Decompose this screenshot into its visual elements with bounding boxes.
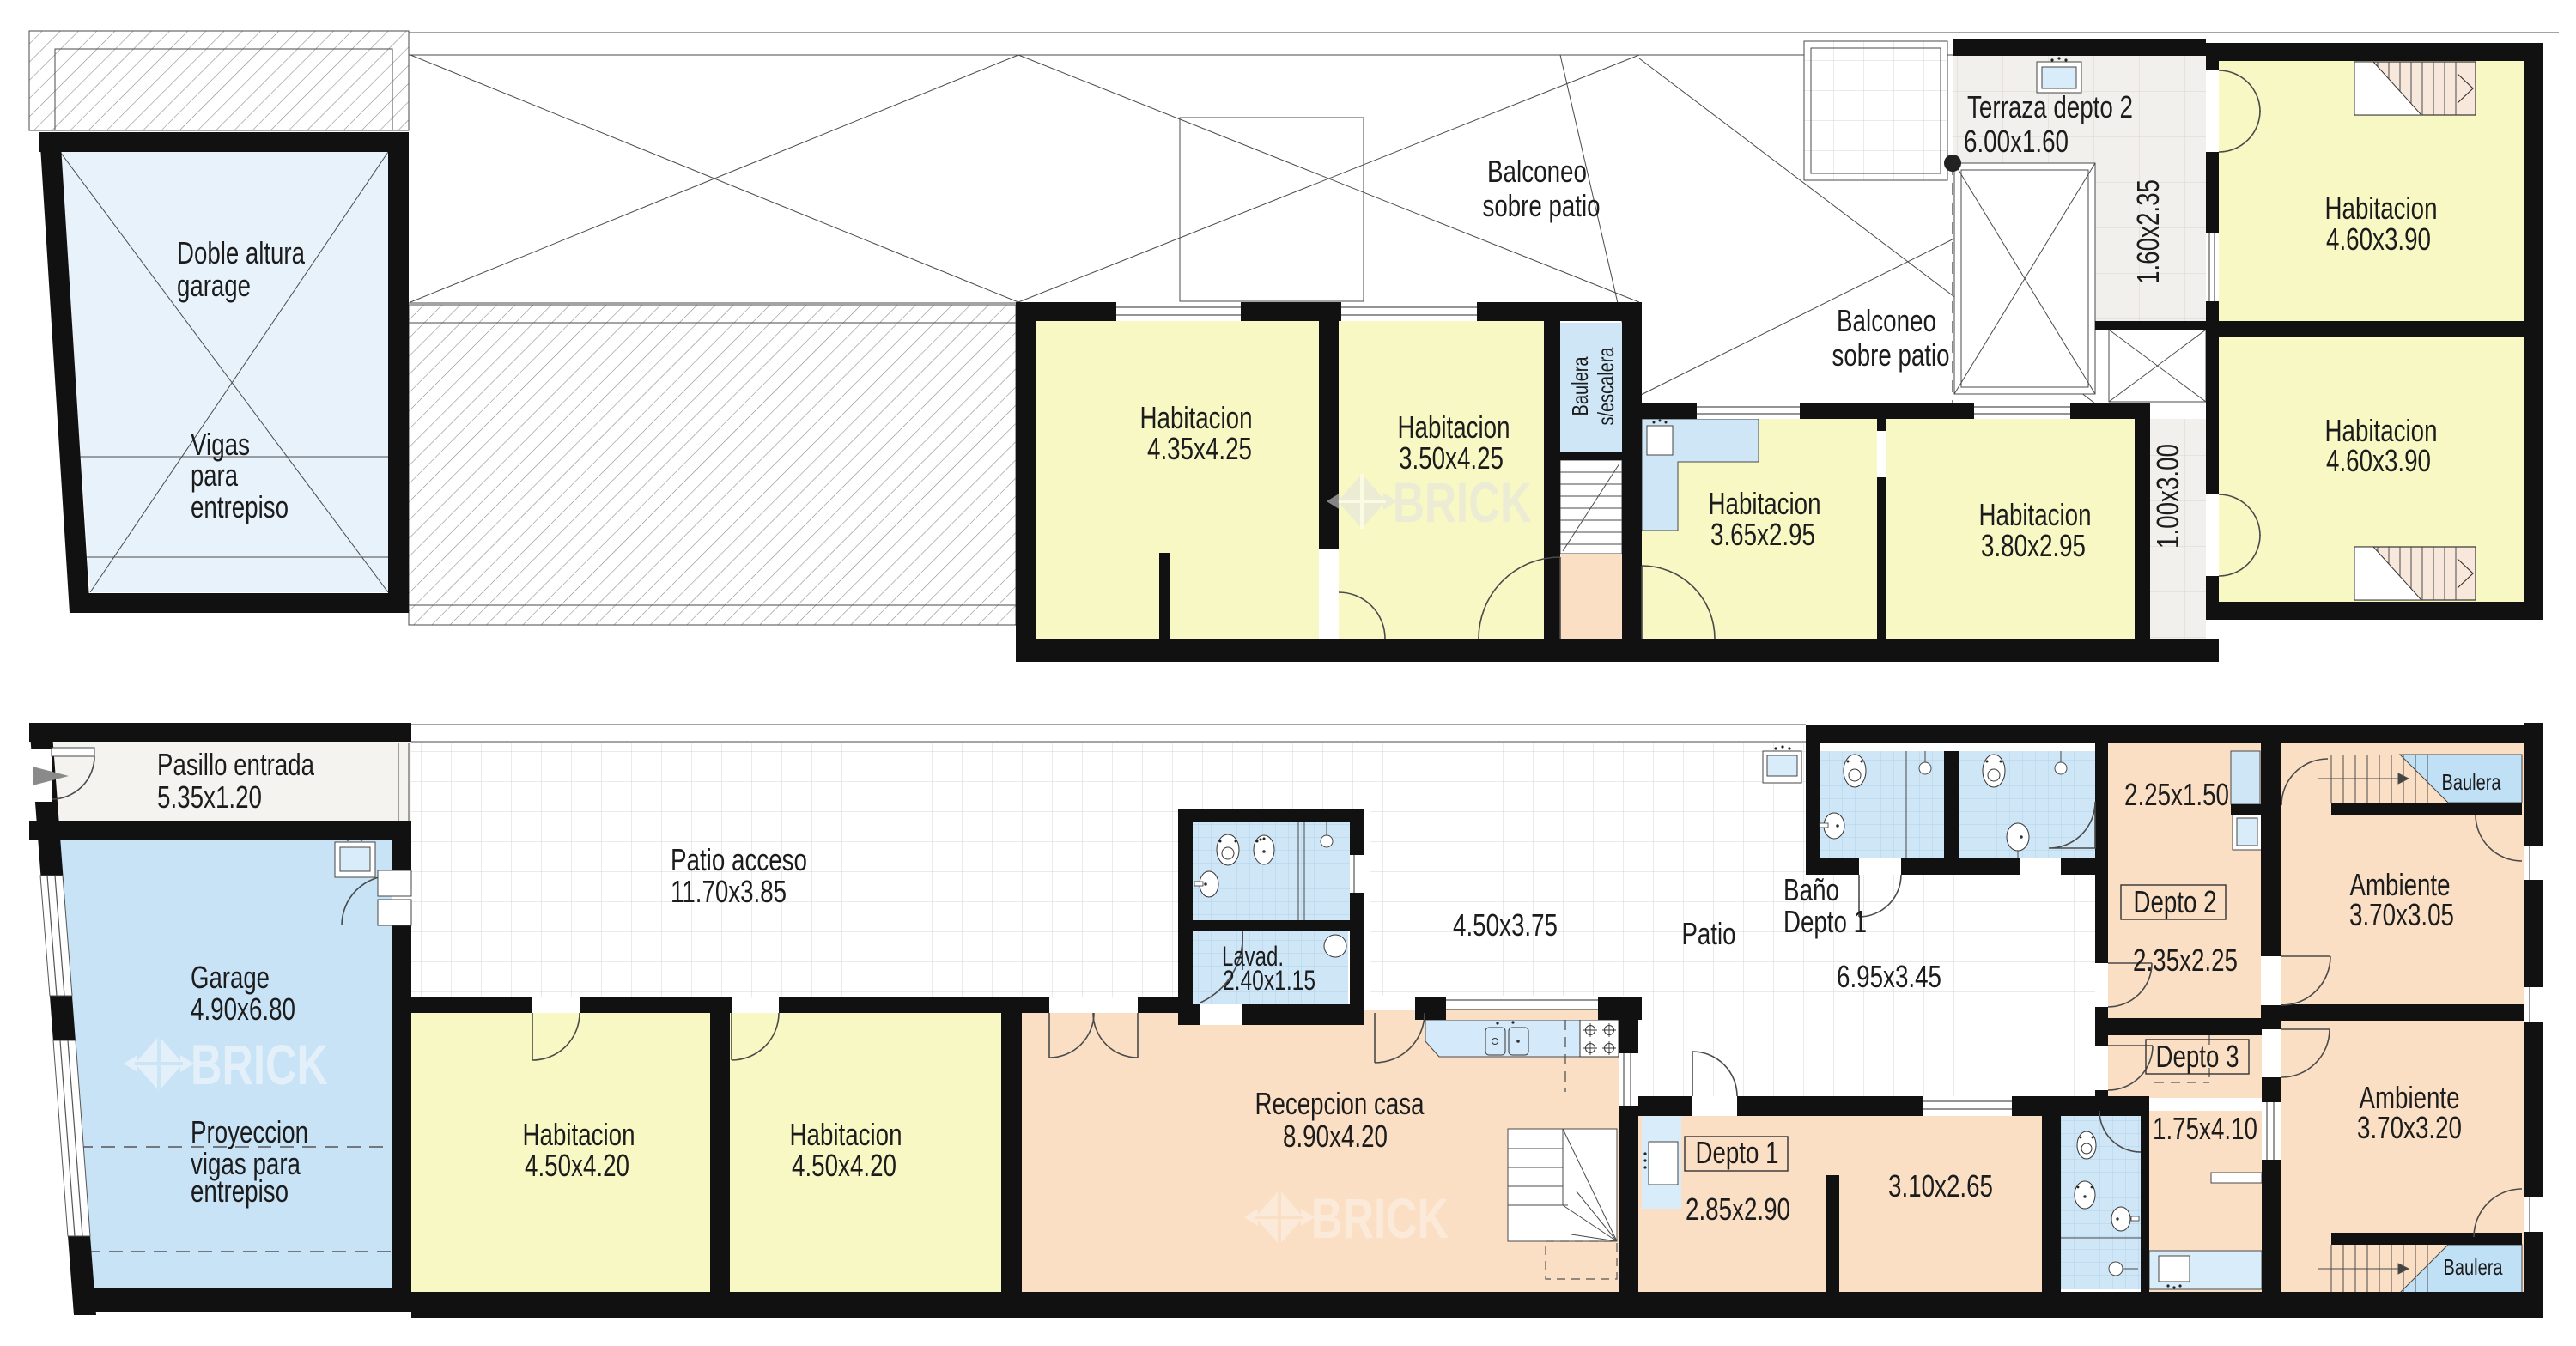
svg-text:Habitacion: Habitacion xyxy=(2325,191,2438,226)
svg-text:Baulera: Baulera xyxy=(2442,769,2501,795)
svg-text:2.35x2.25: 2.35x2.25 xyxy=(2133,943,2238,978)
svg-text:entrepiso: entrepiso xyxy=(191,489,289,524)
svg-text:BRICK: BRICK xyxy=(1311,1186,1449,1250)
svg-text:Recepcion casa: Recepcion casa xyxy=(1255,1086,1425,1121)
svg-text:Garage: Garage xyxy=(191,960,270,995)
svg-text:para: para xyxy=(191,458,239,493)
svg-text:Doble altura: Doble altura xyxy=(177,235,306,270)
svg-text:Habitacion: Habitacion xyxy=(1398,409,1510,445)
svg-text:Habitacion: Habitacion xyxy=(1140,400,1253,435)
svg-text:1.00x3.00: 1.00x3.00 xyxy=(2150,444,2185,549)
svg-text:6.95x3.45: 6.95x3.45 xyxy=(1837,959,1941,994)
svg-text:entrepiso: entrepiso xyxy=(191,1173,289,1209)
svg-text:Habitacion: Habitacion xyxy=(1709,486,1821,521)
svg-text:Patio: Patio xyxy=(1682,916,1736,951)
svg-text:4.50x3.75: 4.50x3.75 xyxy=(1453,907,1558,943)
svg-text:s/escalera: s/escalera xyxy=(1593,347,1619,425)
svg-text:Proyeccion: Proyeccion xyxy=(191,1114,308,1149)
svg-text:Baulera: Baulera xyxy=(1567,356,1593,415)
svg-text:Terraza depto 2: Terraza depto 2 xyxy=(1967,89,2133,124)
svg-text:garage: garage xyxy=(177,268,251,303)
svg-text:4.50x4.20: 4.50x4.20 xyxy=(792,1148,896,1183)
svg-text:3.70x3.20: 3.70x3.20 xyxy=(2357,1110,2462,1145)
svg-text:Vigas: Vigas xyxy=(191,427,250,462)
svg-text:Depto 3: Depto 3 xyxy=(2156,1039,2239,1074)
svg-text:sobre patio: sobre patio xyxy=(1832,337,1950,373)
svg-text:sobre patio: sobre patio xyxy=(1483,188,1601,223)
svg-text:Balconeo: Balconeo xyxy=(1837,303,1936,338)
svg-text:Balconeo: Balconeo xyxy=(1487,154,1587,189)
svg-text:Baño: Baño xyxy=(1783,872,1839,907)
svg-text:Habitacion: Habitacion xyxy=(790,1117,902,1152)
svg-text:Baulera: Baulera xyxy=(2444,1254,2503,1280)
svg-text:3.80x2.95: 3.80x2.95 xyxy=(1981,528,2086,563)
svg-text:2.85x2.90: 2.85x2.90 xyxy=(1686,1191,1790,1227)
svg-text:Habitacion: Habitacion xyxy=(1979,497,2092,532)
svg-text:BRICK: BRICK xyxy=(191,1033,328,1096)
svg-text:2.25x1.50: 2.25x1.50 xyxy=(2124,777,2229,812)
svg-text:Depto 1: Depto 1 xyxy=(1783,904,1867,939)
svg-text:3.65x2.95: 3.65x2.95 xyxy=(1710,517,1815,552)
svg-text:BRICK: BRICK xyxy=(1393,470,1532,534)
svg-text:Depto 2: Depto 2 xyxy=(2134,884,2217,919)
svg-text:4.60x3.90: 4.60x3.90 xyxy=(2326,443,2431,478)
svg-text:11.70x3.85: 11.70x3.85 xyxy=(671,874,787,909)
svg-text:4.90x6.80: 4.90x6.80 xyxy=(191,991,295,1027)
svg-text:1.75x4.10: 1.75x4.10 xyxy=(2153,1111,2257,1146)
svg-text:4.50x4.20: 4.50x4.20 xyxy=(525,1148,629,1183)
svg-text:Habitacion: Habitacion xyxy=(523,1117,635,1152)
svg-text:1.60x2.35: 1.60x2.35 xyxy=(2130,179,2166,284)
svg-text:3.10x2.65: 3.10x2.65 xyxy=(1888,1168,1993,1204)
svg-text:2.40x1.15: 2.40x1.15 xyxy=(1223,965,1315,996)
svg-text:6.00x1.60: 6.00x1.60 xyxy=(1964,124,2069,159)
svg-text:4.35x4.25: 4.35x4.25 xyxy=(1147,431,1252,466)
svg-text:4.60x3.90: 4.60x3.90 xyxy=(2326,221,2431,257)
svg-text:3.70x3.05: 3.70x3.05 xyxy=(2349,897,2454,932)
svg-text:5.35x1.20: 5.35x1.20 xyxy=(157,779,262,815)
svg-text:Depto 1: Depto 1 xyxy=(1696,1135,1779,1170)
svg-text:Pasillo entrada: Pasillo entrada xyxy=(157,747,315,782)
svg-text:8.90x4.20: 8.90x4.20 xyxy=(1283,1119,1388,1154)
svg-text:Patio acceso: Patio acceso xyxy=(671,842,807,877)
